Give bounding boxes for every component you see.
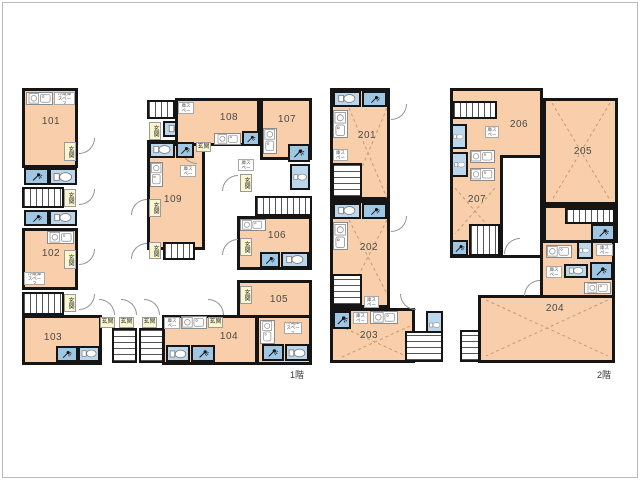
door-arc xyxy=(99,299,115,315)
entrance-label: 玄関 xyxy=(240,174,252,192)
entrance-label: 玄関 xyxy=(149,122,161,140)
staircase xyxy=(565,208,615,224)
door-arc xyxy=(391,216,407,232)
fridge-space-label: 冷蔵庫スペース xyxy=(596,244,613,256)
room-number: 106 xyxy=(262,230,292,241)
room-number: 206 xyxy=(504,119,534,130)
room-number: 202 xyxy=(354,242,384,253)
entrance-label: 玄関 xyxy=(240,238,252,256)
toilet-icon xyxy=(281,252,309,268)
entrance-label: 玄関 xyxy=(142,317,157,328)
shower-icon xyxy=(362,203,387,219)
fridge-space-label: 冷蔵庫スペース xyxy=(333,149,348,161)
shower-icon xyxy=(590,262,613,280)
staircase xyxy=(163,242,195,260)
fridge-space-label: 冷蔵庫スペース xyxy=(546,266,562,278)
toilet-icon xyxy=(49,168,77,185)
door-arc xyxy=(79,294,95,310)
shower-icon xyxy=(362,91,387,107)
fridge-space-label: 冷蔵庫スペース xyxy=(164,317,180,329)
shower-icon xyxy=(333,311,351,329)
toilet-icon xyxy=(451,152,468,177)
staircase xyxy=(22,187,64,208)
fridge-space-label: 冷蔵庫スペース xyxy=(353,312,368,324)
door-arc xyxy=(131,199,147,215)
room-number: 102 xyxy=(36,248,66,259)
shower-icon xyxy=(191,345,215,362)
kitchen-sink-icon xyxy=(370,311,398,324)
toilet-icon xyxy=(451,124,467,149)
toilet-icon xyxy=(166,345,190,362)
door-arc xyxy=(121,299,137,315)
door-arc xyxy=(222,239,238,255)
door-arc xyxy=(144,299,160,315)
room-number: 107 xyxy=(272,114,302,125)
shower-icon xyxy=(451,240,468,256)
toilet-icon xyxy=(49,210,77,226)
kitchen-sink-icon xyxy=(214,133,241,145)
room-number: 103 xyxy=(38,332,68,343)
door-arc xyxy=(79,189,95,205)
entrance-label: 玄関 xyxy=(240,286,252,304)
room-number: 108 xyxy=(214,112,244,123)
entrance-label: 玄関 xyxy=(119,317,134,328)
room-number: 104 xyxy=(214,331,244,342)
fridge-space-label: 冷蔵庫スペース xyxy=(180,165,196,177)
room-number: 109 xyxy=(158,194,188,205)
entrance-label: 玄関 xyxy=(64,250,76,269)
fridge-space-label: 冷蔵庫スペース xyxy=(364,296,379,308)
staircase xyxy=(255,196,312,216)
fridge-space-label: 冷蔵庫スペース xyxy=(178,102,194,114)
toilet-icon xyxy=(577,241,593,259)
staircase xyxy=(22,292,64,315)
shower-icon xyxy=(591,224,615,241)
room-number: 101 xyxy=(36,116,66,127)
entrance-label: 玄関 xyxy=(196,142,211,152)
room-number: 205 xyxy=(568,146,598,157)
kitchen-sink-icon xyxy=(47,231,74,244)
kitchen-sink-icon xyxy=(333,110,348,138)
entrance-label: 玄関 xyxy=(149,199,161,217)
kitchen-sink-icon xyxy=(333,222,348,250)
room-number: 201 xyxy=(352,130,382,141)
shower-icon xyxy=(24,168,49,185)
shower-icon xyxy=(56,346,78,362)
floor-2-label: 2階 xyxy=(597,368,611,381)
shower-icon xyxy=(176,142,194,158)
staircase xyxy=(452,101,497,119)
shower-icon xyxy=(24,210,49,226)
door-arc xyxy=(79,249,95,265)
toilet-icon xyxy=(78,346,100,362)
staircase xyxy=(332,274,362,306)
door-arc xyxy=(79,138,95,154)
toilet-icon xyxy=(564,264,588,278)
kitchen-sink-icon xyxy=(26,92,53,105)
room-number: 207 xyxy=(462,194,492,205)
door-arc xyxy=(391,104,407,120)
staircase xyxy=(405,331,443,362)
entrance-label: 玄関 xyxy=(208,317,223,328)
door-arc xyxy=(131,243,147,259)
shower-icon xyxy=(262,344,284,361)
toilet-icon xyxy=(333,91,361,107)
toilet-icon xyxy=(285,344,309,361)
staircase xyxy=(112,328,137,363)
fridge-space-label: 冷蔵庫スペース xyxy=(238,159,254,171)
room-number: 204 xyxy=(540,303,570,314)
kitchen-sink-icon xyxy=(470,150,495,163)
room-number: 105 xyxy=(264,294,294,305)
entrance-label: 玄関 xyxy=(64,294,76,312)
floor-1-label: 1階 xyxy=(290,368,304,381)
fridge-space-label: 冷蔵庫スペース xyxy=(24,272,45,285)
toilet-icon xyxy=(333,203,361,219)
stairwell-void xyxy=(500,155,543,258)
kitchen-sink-icon xyxy=(260,320,275,344)
kitchen-sink-icon xyxy=(181,316,207,329)
entrance-label: 玄関 xyxy=(100,317,115,328)
fridge-space-label: 冷蔵庫スペース xyxy=(485,126,499,138)
shower-icon xyxy=(288,144,310,162)
toilet-icon xyxy=(149,142,175,158)
toilet-icon xyxy=(290,164,310,190)
shower-icon xyxy=(242,131,260,146)
entrance-label: 玄関 xyxy=(64,142,76,161)
staircase xyxy=(147,100,175,119)
door-arc xyxy=(208,299,224,315)
kitchen-sink-icon xyxy=(263,128,277,154)
staircase xyxy=(469,224,500,256)
room-number: 203 xyxy=(354,330,384,341)
entrance-label: 玄関 xyxy=(149,242,161,259)
door-arc xyxy=(222,175,238,191)
staircase xyxy=(332,163,362,198)
kitchen-sink-icon xyxy=(470,168,495,181)
entrance-label: 玄関 xyxy=(64,189,76,207)
shower-icon xyxy=(260,252,280,268)
kitchen-sink-icon xyxy=(150,162,163,187)
door-arc xyxy=(524,280,540,296)
kitchen-sink-icon xyxy=(546,245,572,258)
fridge-space-label: 冷蔵庫スペース xyxy=(54,92,75,105)
kitchen-sink-icon xyxy=(584,282,611,294)
staircase xyxy=(139,328,164,363)
fridge-space-label: 冷蔵庫スペース xyxy=(284,322,302,334)
